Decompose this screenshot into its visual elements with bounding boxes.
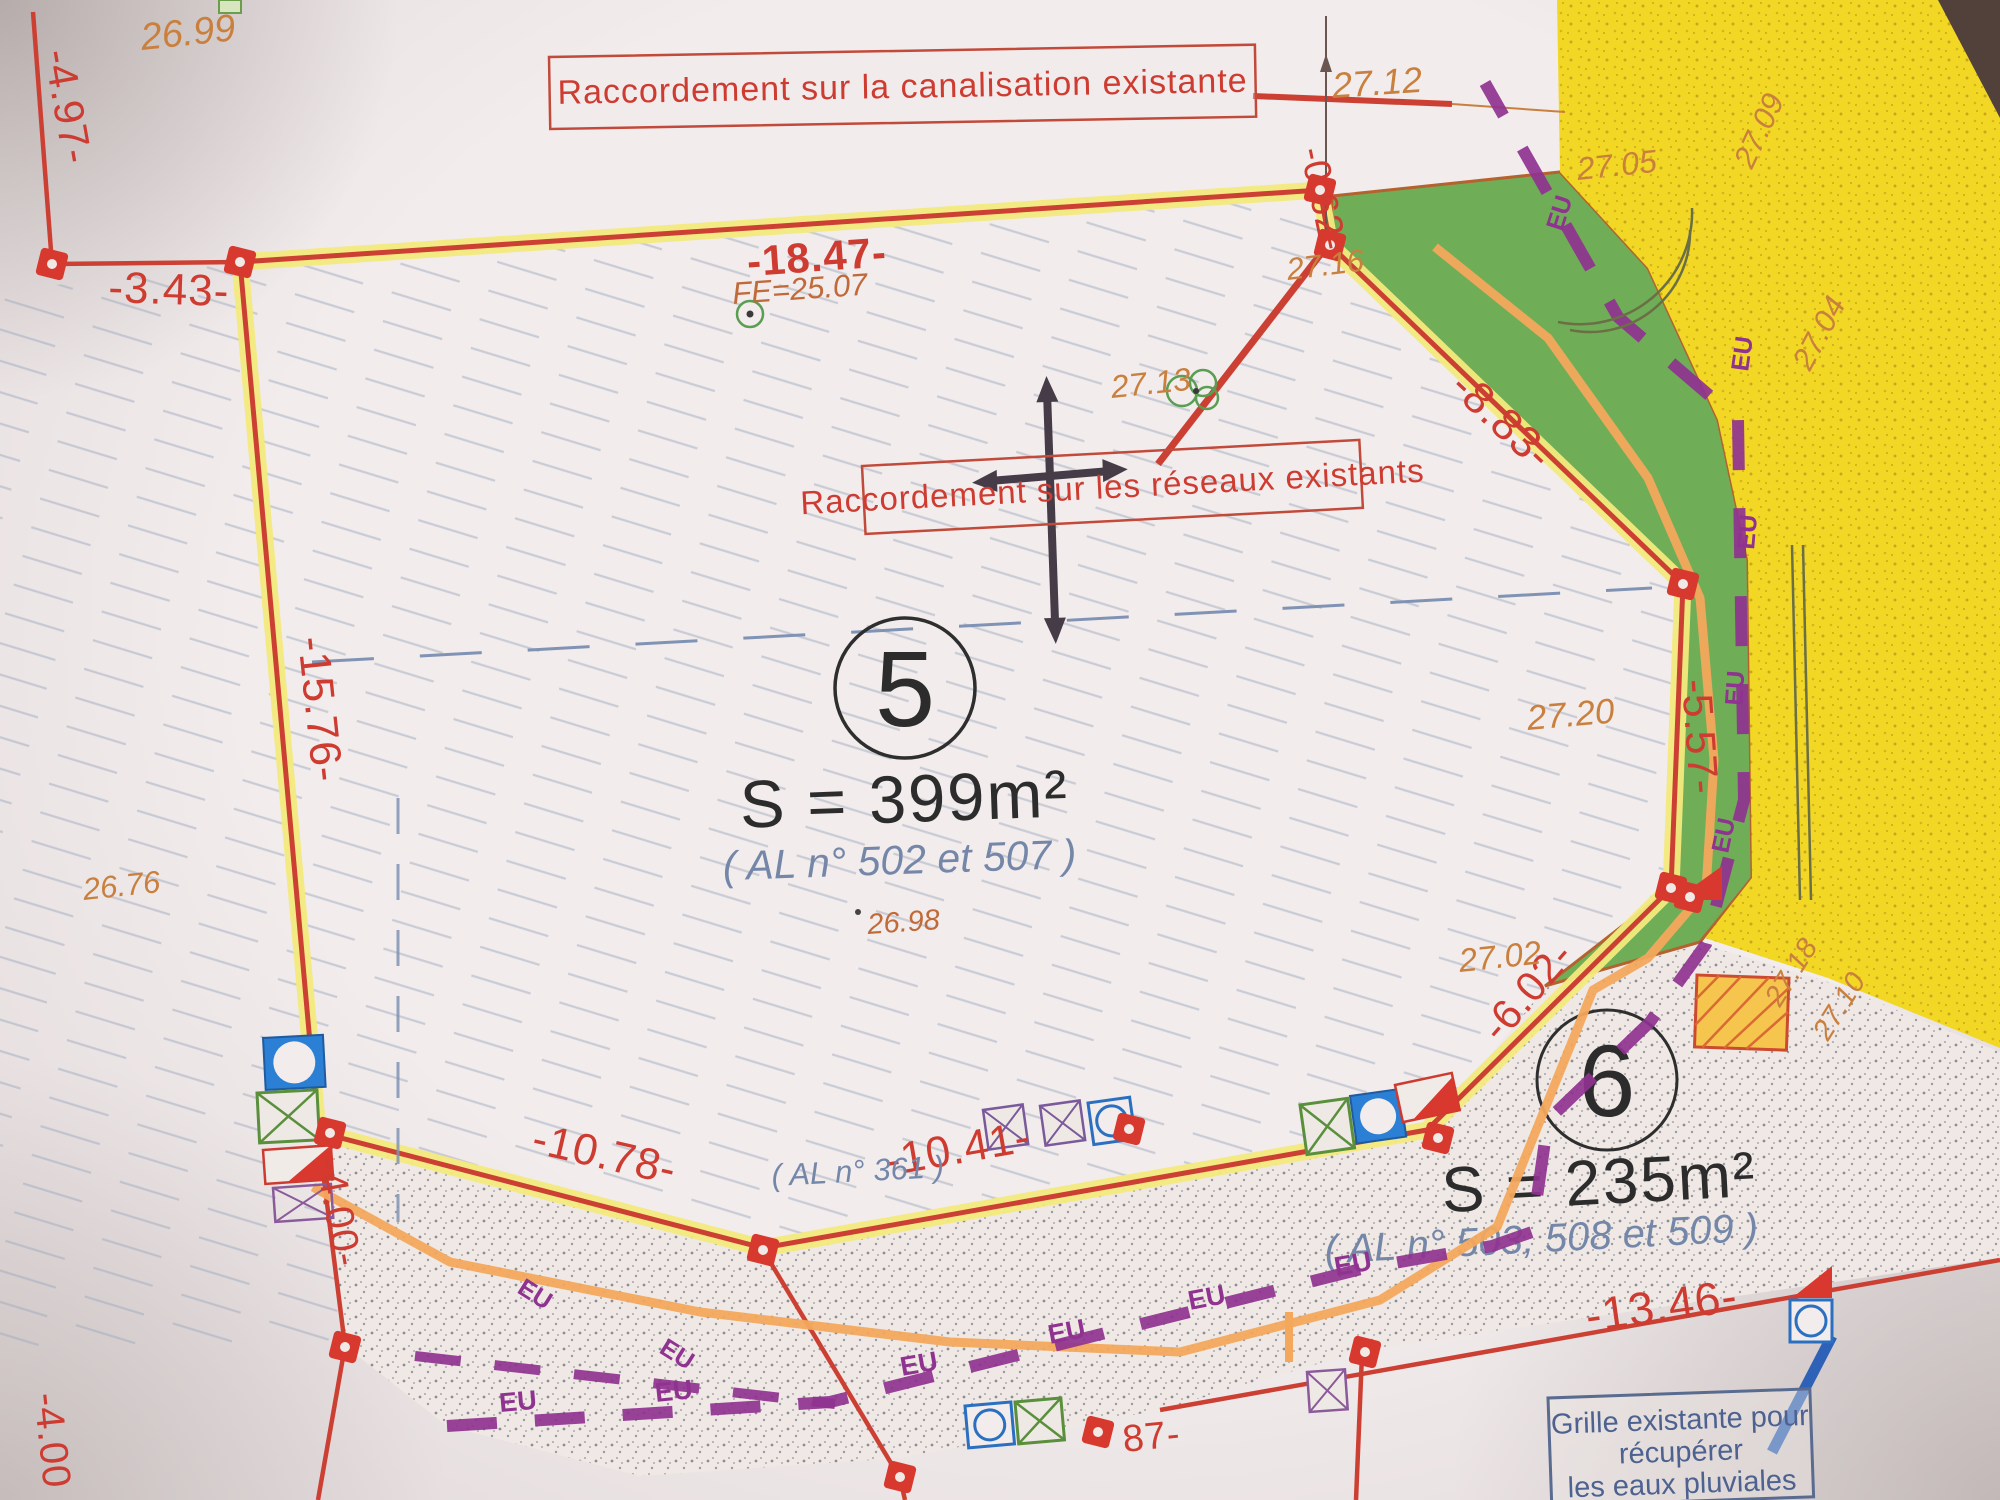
purple-x-square-icon — [1040, 1100, 1085, 1145]
green-x-square-icon — [1300, 1098, 1354, 1154]
eu-label: EU — [653, 1374, 693, 1408]
green-x-square-icon — [257, 1090, 320, 1143]
note-grille-line2: récupérer — [1618, 1434, 1743, 1470]
blue-circle-square-icon — [1790, 1300, 1832, 1342]
elevation-26-99: 26.99 — [138, 7, 238, 59]
spot-dot — [855, 909, 861, 915]
dimension-3-43: -3.43- — [108, 263, 231, 316]
eu-label: EU — [1732, 513, 1763, 550]
site-plan-photo: 5 S = 399m² ( AL n° 502 et 507 ) 26.98 6… — [0, 0, 2000, 1500]
banner-canalisation: Raccordement sur la canalisation existan… — [549, 45, 1256, 129]
elevation-26-98: 26.98 — [865, 904, 941, 941]
parcel5-number: 5 — [875, 628, 935, 749]
blue-circle-square-icon — [263, 1035, 326, 1090]
purple-x-square-icon — [1307, 1369, 1348, 1412]
parcel5-area: S = 399m² — [739, 756, 1070, 842]
green-x-square-icon — [1015, 1398, 1064, 1444]
eu-label: EU — [1332, 1246, 1374, 1282]
eu-label: EU — [1720, 670, 1750, 707]
tree-dot — [1193, 388, 1199, 394]
elevation-27-20: 27.20 — [1524, 691, 1616, 738]
eu-label: EU — [498, 1385, 538, 1418]
eu-label: EU — [1726, 335, 1759, 373]
elevation-27-12: 27.12 — [1330, 59, 1424, 106]
note-grille: Grille existante pour récupérer les eaux… — [1548, 1389, 1814, 1500]
cadastral-division-plan: 5 S = 399m² ( AL n° 502 et 507 ) 26.98 6… — [0, 0, 2000, 1500]
dimension-87: 87- — [1121, 1413, 1183, 1461]
dimension-4-00-bottom: -4.00 — [25, 1390, 79, 1490]
eu-label: EU — [898, 1346, 940, 1382]
banner1-leader-tail — [1452, 104, 1565, 112]
blue-circle-square-icon — [965, 1402, 1014, 1448]
